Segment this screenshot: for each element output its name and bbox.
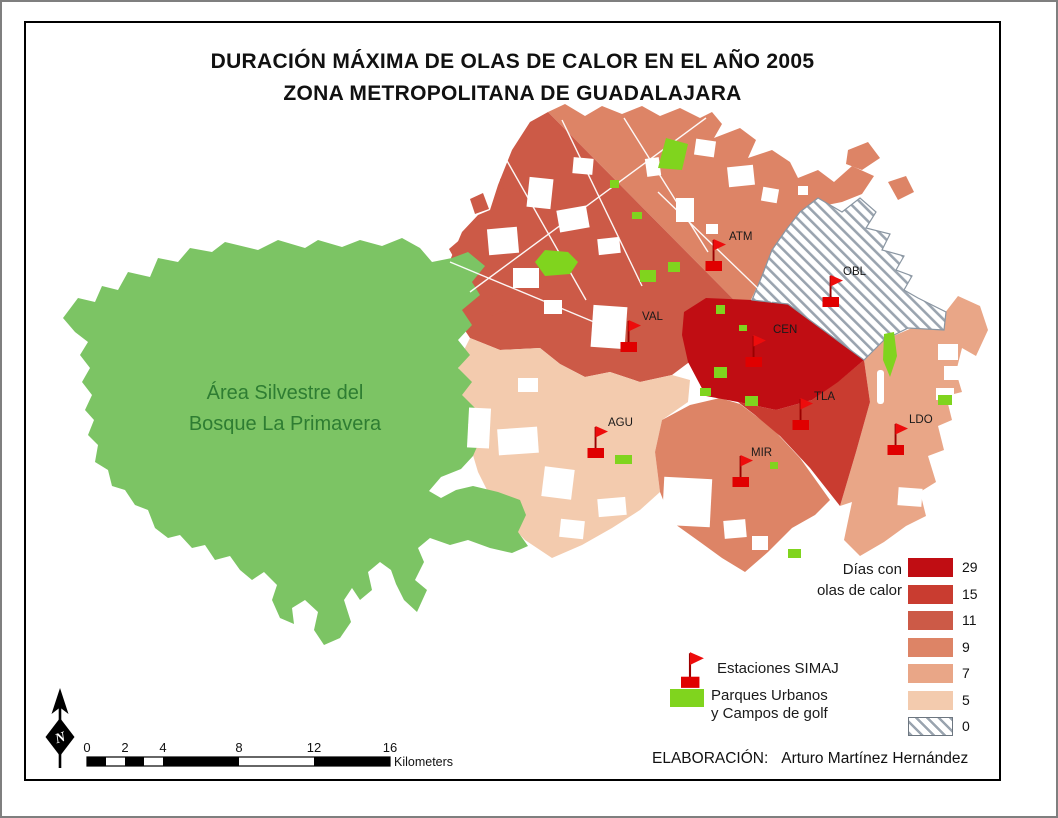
legend-parks-label: Parques Urbanos y Campos de golf [711,687,828,723]
legend-swatch-0-hatched [908,717,953,736]
legend-row-5: 5 [908,691,978,710]
legend-value-0: 0 [962,717,970,736]
forest-la-primavera [63,238,528,645]
legend-classes: 29 15 11 9 7 5 0 [908,558,978,744]
north-arrow-icon: N [46,688,75,768]
legend-row-0: 0 [908,717,978,736]
scale-tick-8: 8 [235,740,242,755]
legend-swatch-5 [908,691,953,710]
station-label-agu: AGU [608,417,633,429]
legend-value-9: 9 [962,638,970,657]
legend-swatch-9 [908,638,953,657]
map-title: DURACIÓN MÁXIMA DE OLAS DE CALOR EN EL A… [30,46,995,110]
scale-tick-2: 2 [121,740,128,755]
scale-unit: Kilometers [394,755,453,769]
legend-value-15: 15 [962,585,978,604]
legend-flag-icon [681,652,704,688]
legend-row-7: 7 [908,664,978,683]
legend-park-swatch [670,689,704,707]
scale-bar: 0 2 4 8 12 16 Kilometers [83,740,453,769]
credit-author: Arturo Martínez Hernández [781,750,968,768]
legend-value-7: 7 [962,664,970,683]
legend-value-5: 5 [962,691,970,710]
scale-tick-4: 4 [159,740,166,755]
legend-swatch-29 [908,558,953,577]
station-label-obl: OBL [843,266,866,278]
scale-tick-0: 0 [83,740,90,755]
station-label-atm: ATM [729,231,752,243]
legend-value-11: 11 [962,611,977,630]
scale-tick-16: 16 [383,740,397,755]
legend-swatch-11 [908,611,953,630]
legend-stations-label: Estaciones SIMAJ [717,660,839,677]
legend-title: Días con olas de calor [800,559,902,601]
station-label-mir: MIR [751,447,772,459]
credit-label: ELABORACIÓN: [652,750,768,768]
legend-row-11: 11 [908,611,978,630]
legend-swatch-7 [908,664,953,683]
legend-swatch-15 [908,585,953,604]
forest-label: Área Silvestre del Bosque La Primavera [140,378,430,440]
legend-row-9: 9 [908,638,978,657]
legend-row-15: 15 [908,585,978,604]
station-label-val: VAL [642,311,663,323]
credit-line: ELABORACIÓN: Arturo Martínez Hernández [652,750,968,768]
map-title-line2: ZONA METROPOLITANA DE GUADALAJARA [30,78,995,110]
station-label-cen: CEN [773,324,797,336]
legend-value-29: 29 [962,558,978,577]
station-label-tla: TLA [814,391,835,403]
station-label-ldo: LDO [909,414,933,426]
scale-tick-12: 12 [307,740,321,755]
map-page: N 0 2 4 8 12 16 Kilometers DURACIÓN MÁXI… [0,0,1058,818]
legend-row-29: 29 [908,558,978,577]
map-title-line1: DURACIÓN MÁXIMA DE OLAS DE CALOR EN EL A… [30,46,995,78]
